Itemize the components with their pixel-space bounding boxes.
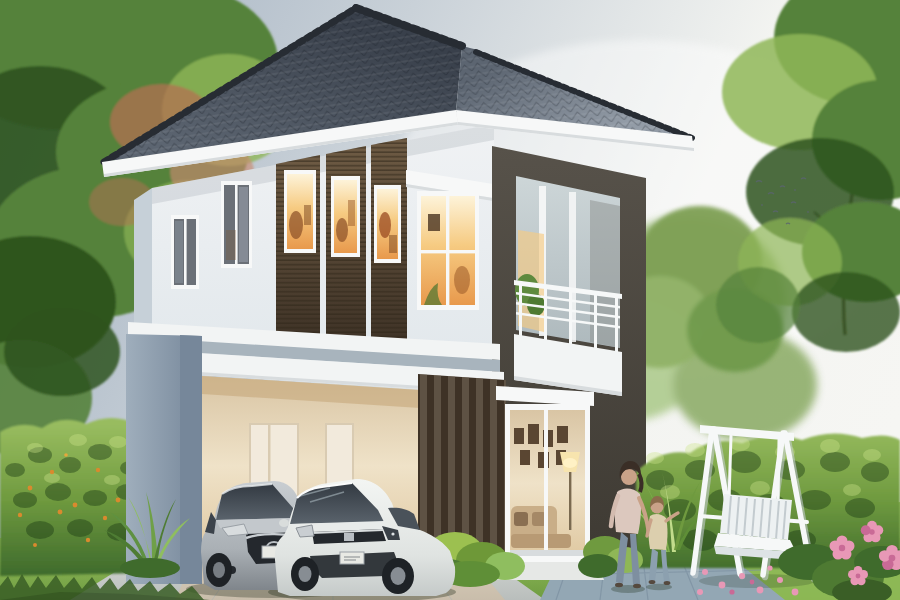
window-small-right [221, 181, 252, 268]
lit-window-1 [284, 170, 316, 253]
lit-window-2 [331, 176, 360, 257]
architectural-rendering [0, 0, 900, 600]
slat-panel-3 [371, 138, 407, 347]
hatchback-license-plate [340, 552, 364, 564]
door-mullion [544, 410, 548, 556]
hatchback-badge [344, 533, 354, 541]
swing-seat [714, 494, 796, 560]
wall-left-side [134, 188, 152, 342]
framed-picture [428, 214, 440, 231]
slat-panel-2 [326, 146, 366, 344]
hatchback-mirror [279, 519, 289, 527]
slat-panel-1 [276, 155, 320, 342]
slat-screen [418, 374, 506, 558]
window-small-left [171, 215, 199, 289]
scene-canvas [0, 0, 900, 600]
lit-window-3 [374, 185, 401, 263]
living-room-interior [510, 410, 585, 556]
